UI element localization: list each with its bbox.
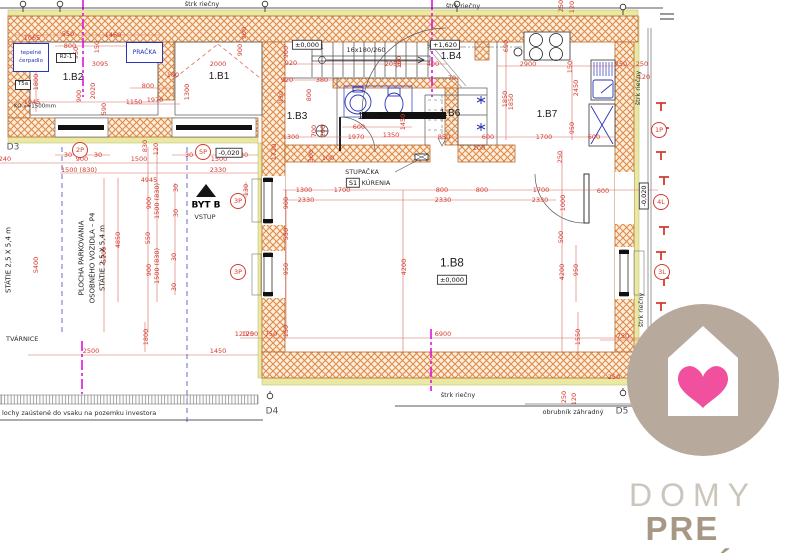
dimension-label: 2900 [520,61,537,68]
dimension-label: 2330 [210,167,227,174]
note-label: D3 [7,144,20,153]
dimension-label: 950 [573,264,580,276]
dimension-label: 900 [237,44,244,56]
dimension-label: 750 [246,331,258,338]
heat-pump-label-1: tepelné [21,50,42,56]
dimension-label: 70 [448,75,456,82]
dimension-label: 300 [308,150,315,162]
dimension-label: 600 [482,134,494,141]
dimension-label: 1300 [184,84,191,101]
dimension-label: 2330 [532,197,549,204]
dimension-label: 1800 [143,329,150,346]
room-label: 1.B3 [287,112,308,122]
opening-marker: 5P [195,144,211,160]
dimension-label: 900 [146,197,153,209]
parking-label-edge: OSOBNÉHO VOZIDLA STÁTIE 2,5 X 5,4 m [0,223,14,297]
dimension-label: 250 [558,0,565,12]
dimension-label: 590 [101,103,108,115]
dimension-label: 690 [503,40,510,52]
parking-label-line3: STÁTIE 2,5 X 5,4 m [97,213,108,304]
dimension-label: 30 [171,253,178,261]
dimension-label: 600 [597,188,609,195]
dimension-label: 150 [567,61,574,73]
dimension-label: 850 [438,134,450,141]
dimension-label: 1970 [147,97,164,104]
dimension-label: 100 [396,56,403,68]
note-label: KO v=1500mm [14,104,56,110]
dimension-label: 1720 [271,144,278,161]
logo-text-line2: PRE ĽUDÍ [646,510,749,553]
dimension-label: 930 [278,91,285,103]
panel-box-r2-1: R2-1 [56,53,76,63]
dimension-label: 4200 [559,264,566,281]
dimension-label: 800 [142,83,154,90]
dimension-label: 1000 [560,195,567,212]
dimension-label: 1700 [536,134,553,141]
note-label: VSTUP [194,214,215,221]
dimension-label: 550 [145,232,152,244]
dimension-label: 4850 [115,232,122,249]
dimension-label: 30 [94,152,102,159]
dimension-label: 1460 [105,32,122,39]
dimension-label: 120 [569,1,576,13]
dimension-label: 100 [473,145,485,152]
dimension-label: 1350 [383,132,400,139]
dimension-label: 1450 [400,114,407,131]
heat-pump-box: tepelné čerpadlo [13,43,49,72]
note-label: štrk riečny [441,392,475,399]
dimension-label: 30 [64,152,72,159]
parking-label-line2: OSOBNÉHO VOZIDLA – P4 [87,213,98,304]
dimension-label: 3095 [92,61,109,68]
level-mark: ±0,000 [437,275,467,285]
dimension-label: 1500 [131,156,148,163]
dimension-label: 250 [557,151,564,163]
dimension-label: 2000 [210,61,227,68]
dimension-label: 1300 [283,134,300,141]
dimension-label: 1550 [575,329,582,346]
dimension-label: 900 [76,90,83,102]
dimension-label: 550 [283,228,290,240]
dimension-label: 150 [94,41,101,53]
opening-marker: 2P [72,142,88,158]
parking-label-line1: PLOCHA PARKOVANIA [76,213,87,304]
opening-marker: 3L [654,264,670,280]
dimension-label: 4200 [401,259,408,276]
dimension-label: 30 [173,209,180,217]
dimension-label: 830 [142,140,149,152]
note-label: štrk riečny [446,3,480,10]
note-label: TVÁRNICE [6,336,38,343]
dimension-label: 1500 (830) [61,167,97,174]
dimension-label: 700 [311,125,318,137]
dimension-label: 950 [569,122,576,134]
dimension-label: 2330 [298,197,315,204]
dimension-label: 30 [171,283,178,291]
note-label: BYT B [191,202,220,211]
room-label: 1.B7 [537,110,558,120]
note-label: lochy zaústené do vsaku na pozemku inves… [2,410,156,417]
dimension-label: 240 [0,156,11,163]
note-label: 16x180/260 [346,47,385,54]
dimension-label: 920 [285,60,297,67]
dimension-label: 100 [322,155,334,162]
room-label: 1.B2 [63,73,84,83]
dimension-label: 500 [558,231,565,243]
dimension-label: 920 [281,77,293,84]
dimension-label: 380 [316,77,328,84]
dimension-label: 100 [167,72,179,79]
parking-label: PLOCHA PARKOVANIA OSOBNÉHO VOZIDLA – P4 … [76,213,108,304]
dimension-label: 800 [436,187,448,194]
level-mark: -0,020 [639,183,649,210]
room-label: 1.B4 [441,52,462,62]
dimension-label: 250 [636,61,648,68]
dimension-label: 1700 [533,187,550,194]
dimension-label: 130 [243,184,250,196]
note-label: 9 [427,44,431,50]
dimension-label: 950 [283,263,290,275]
dimension-label: 30 [173,184,180,192]
dimension-label: 800 [476,187,488,194]
dimension-label: 1065 [24,35,41,42]
heat-pump-label-2: čerpadlo [19,58,43,64]
level-mark: ±0,000 [292,40,322,50]
dimension-label: 2450 [573,80,580,97]
logo-text-line1: DOMY [629,477,757,514]
dimension-label: 30 [185,152,193,159]
panel-box-t5a: T5a [15,80,31,90]
dimension-label: 120 [153,143,160,155]
room-label: 1.B6 [440,109,461,119]
dimension-label: 600 [588,134,600,141]
opening-marker: 3P [230,264,246,280]
dimension-label: 1150 [126,99,143,106]
dimension-label: 1300 [296,187,313,194]
dimension-label: 1800 [33,74,40,91]
opening-marker: 4L [653,194,669,210]
opening-marker: 3P [230,193,246,209]
dimension-label: 900 [241,27,248,39]
dimension-label: 2500 [83,348,100,355]
note-label: štrk riečny [185,1,219,8]
dimension-label: 1970 [348,134,365,141]
room-label: 1.B1 [209,72,230,82]
dimension-label: 900 [283,46,290,58]
floor-plan-page: 1065550800146030951045180095015090020205… [0,0,800,553]
note-label: KÚRENIA [362,180,391,187]
note-label: obrubník záhradný [542,409,603,416]
dimension-label: 400 [427,61,439,68]
dimension-label: 1450 [210,348,227,355]
opening-marker: 1P [651,122,667,138]
room-label: 1.B8 [440,258,464,270]
note-label: STUPAČKA [345,169,379,176]
parking-label-edge-line2: STÁTIE 2,5 X 5,4 m [3,223,14,297]
panel-r2-1-label: R2-1 [60,55,73,61]
washer-label: PRAČKA [133,49,157,56]
note-label: 1 [320,45,324,51]
dimension-label: 200 [320,125,327,137]
dimension-label: 120 [571,393,578,405]
dimension-label: 550 [62,31,74,38]
level-mark: +1,620 [430,40,460,50]
note-label: štrk riečny [635,71,642,105]
dimension-label: 900 [283,197,290,209]
panel-t5a-label: T5a [18,82,28,88]
dimension-label: 2330 [435,197,452,204]
dimension-label: 900 [146,264,153,276]
dimension-label: 1500 (830) [154,183,161,219]
dimension-label: 150 [283,325,290,337]
dimension-label: 2020 [90,83,97,100]
dimension-label: 6900 [435,331,452,338]
dimension-label: 750 [265,331,277,338]
dimension-label: 5400 [33,257,40,274]
dimension-label: 250 [615,61,627,68]
dimension-label: 1500 (830) [154,248,161,284]
note-label: D4 [266,408,279,417]
dimension-label: 600 [353,124,365,131]
washer-box: PRAČKA [126,42,163,63]
level-mark: -0,020 [216,148,243,158]
dimension-label: 800 [306,89,313,101]
level-mark: S1 [346,178,360,188]
room-label: 1.B5 [358,112,379,122]
dimension-label: 250 [561,391,568,403]
dimension-label: 1850 [502,91,509,108]
